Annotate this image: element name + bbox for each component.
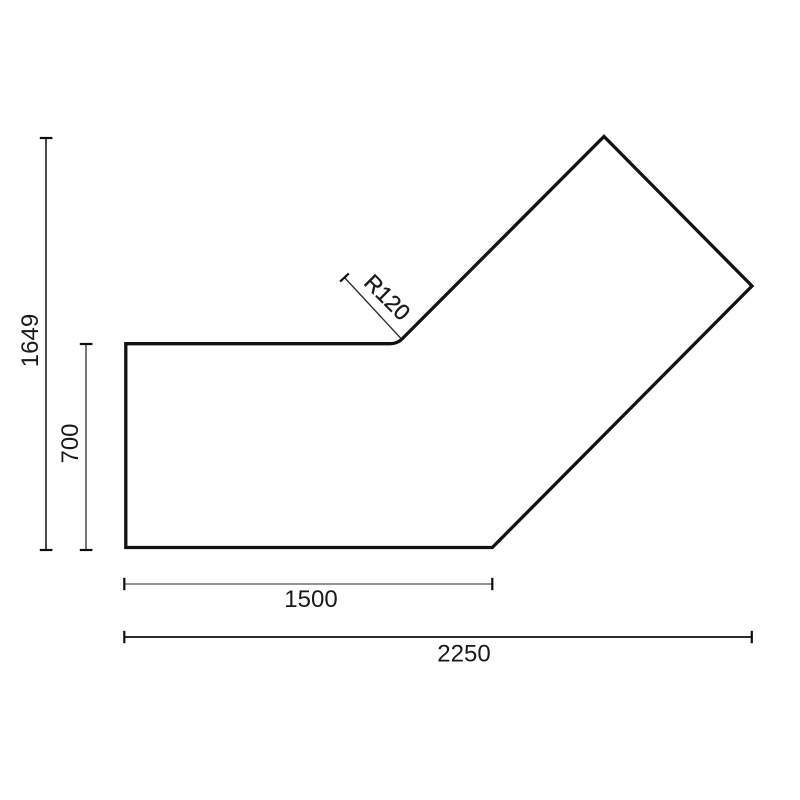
svg-text:2250: 2250 <box>437 641 490 668</box>
svg-text:700: 700 <box>57 423 84 463</box>
svg-text:1649: 1649 <box>17 314 44 367</box>
svg-text:1500: 1500 <box>284 586 337 613</box>
